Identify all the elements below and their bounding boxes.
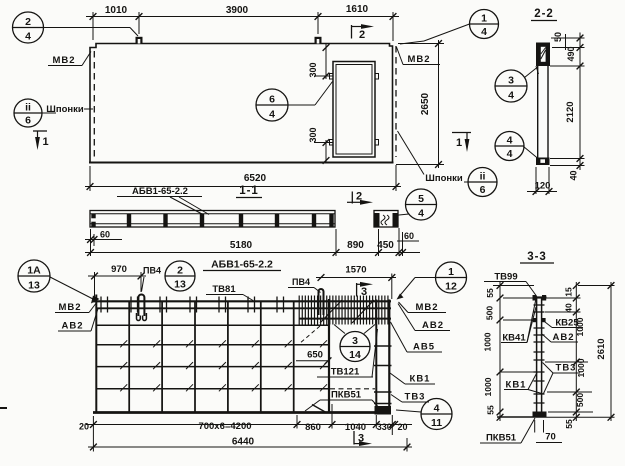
svg-text:ПВ4: ПВ4 bbox=[292, 277, 310, 287]
svg-text:1000: 1000 bbox=[483, 377, 493, 396]
svg-text:2: 2 bbox=[25, 16, 31, 28]
svg-text:1010: 1010 bbox=[105, 5, 128, 16]
svg-text:1: 1 bbox=[481, 12, 487, 24]
svg-text:АВ2: АВ2 bbox=[61, 321, 83, 332]
svg-text:60: 60 bbox=[404, 231, 414, 241]
svg-text:ТВ3: ТВ3 bbox=[556, 363, 577, 374]
svg-text:КВ1: КВ1 bbox=[506, 380, 527, 391]
svg-text:2-2: 2-2 bbox=[534, 8, 554, 20]
svg-text:55: 55 bbox=[564, 419, 574, 429]
svg-text:2610: 2610 bbox=[596, 338, 607, 359]
svg-text:3: 3 bbox=[508, 74, 514, 86]
svg-text:ii: ii bbox=[480, 170, 486, 182]
svg-text:АБВ1-65-2.2: АБВ1-65-2.2 bbox=[132, 186, 188, 197]
svg-text:4: 4 bbox=[25, 30, 31, 42]
svg-text:1А: 1А bbox=[27, 264, 41, 276]
svg-text:70: 70 bbox=[545, 432, 556, 443]
svg-text:2: 2 bbox=[359, 29, 365, 41]
svg-text:АВ2: АВ2 bbox=[422, 320, 444, 331]
svg-text:1-1: 1-1 bbox=[239, 185, 259, 197]
svg-text:3: 3 bbox=[358, 433, 364, 445]
svg-text:ПКВ51: ПКВ51 bbox=[486, 433, 517, 444]
svg-text:ТВ121: ТВ121 bbox=[331, 367, 360, 378]
svg-text:3: 3 bbox=[361, 286, 367, 298]
svg-text:АВ2: АВ2 bbox=[552, 332, 574, 343]
svg-text:1: 1 bbox=[448, 266, 454, 278]
svg-text:МВ2: МВ2 bbox=[407, 54, 430, 65]
svg-text:1: 1 bbox=[42, 136, 48, 148]
svg-text:6440: 6440 bbox=[232, 437, 255, 448]
svg-text:Шпонки: Шпонки bbox=[46, 104, 84, 115]
svg-text:КВ41: КВ41 bbox=[502, 333, 526, 344]
svg-text:6: 6 bbox=[480, 184, 486, 196]
svg-text:ТВ99: ТВ99 bbox=[494, 272, 517, 283]
svg-text:3: 3 bbox=[352, 335, 358, 347]
svg-text:4: 4 bbox=[508, 89, 514, 101]
svg-text:ii: ii bbox=[25, 101, 31, 113]
svg-text:500: 500 bbox=[575, 393, 585, 407]
svg-text:ПВ4: ПВ4 bbox=[143, 266, 161, 276]
svg-text:13: 13 bbox=[28, 279, 40, 291]
svg-text:50: 50 bbox=[553, 32, 563, 42]
svg-text:300: 300 bbox=[308, 62, 318, 77]
svg-text:1040: 1040 bbox=[345, 422, 366, 433]
svg-text:970: 970 bbox=[111, 264, 127, 275]
svg-text:3900: 3900 bbox=[226, 5, 249, 16]
svg-text:20: 20 bbox=[397, 422, 407, 432]
svg-text:5180: 5180 bbox=[230, 240, 253, 251]
svg-text:890: 890 bbox=[347, 240, 364, 251]
svg-text:4: 4 bbox=[507, 148, 513, 160]
svg-text:300: 300 bbox=[308, 127, 318, 142]
svg-text:ТВ81: ТВ81 bbox=[212, 284, 236, 295]
svg-text:6: 6 bbox=[269, 93, 275, 105]
svg-text:500: 500 bbox=[485, 306, 495, 320]
svg-text:МВ2: МВ2 bbox=[415, 302, 438, 313]
svg-text:40: 40 bbox=[564, 303, 574, 313]
svg-text:1610: 1610 bbox=[346, 4, 369, 15]
svg-text:15: 15 bbox=[564, 287, 574, 297]
svg-text:КВ1: КВ1 bbox=[410, 374, 431, 385]
svg-text:ТВ3: ТВ3 bbox=[405, 392, 426, 403]
svg-text:МВ2: МВ2 bbox=[52, 55, 75, 66]
svg-text:55: 55 bbox=[486, 405, 496, 415]
svg-text:1000: 1000 bbox=[483, 332, 493, 351]
svg-text:13: 13 bbox=[174, 278, 186, 290]
svg-text:120: 120 bbox=[535, 181, 551, 192]
svg-text:40: 40 bbox=[569, 170, 579, 180]
svg-text:1000: 1000 bbox=[576, 358, 586, 377]
svg-text:450: 450 bbox=[377, 240, 394, 251]
svg-text:12: 12 bbox=[445, 280, 457, 292]
svg-text:Шпонки: Шпонки bbox=[425, 173, 463, 184]
svg-text:6: 6 bbox=[25, 114, 31, 126]
svg-text:5: 5 bbox=[418, 193, 424, 205]
svg-text:700x6=4200: 700x6=4200 bbox=[198, 421, 251, 432]
svg-text:4: 4 bbox=[418, 207, 424, 219]
svg-text:60: 60 bbox=[100, 230, 110, 240]
svg-text:4: 4 bbox=[434, 402, 440, 414]
svg-text:11: 11 bbox=[431, 417, 442, 429]
svg-text:1: 1 bbox=[456, 137, 462, 149]
svg-text:55: 55 bbox=[485, 288, 495, 298]
svg-text:4: 4 bbox=[507, 134, 513, 146]
svg-text:КВ25: КВ25 bbox=[555, 318, 579, 329]
svg-text:20: 20 bbox=[79, 422, 89, 432]
svg-text:АВ5: АВ5 bbox=[413, 342, 435, 353]
svg-text:4: 4 bbox=[481, 26, 487, 38]
svg-text:3-3: 3-3 bbox=[527, 251, 547, 263]
svg-text:4: 4 bbox=[269, 108, 275, 120]
svg-text:ПКВ51: ПКВ51 bbox=[331, 390, 362, 401]
svg-text:650: 650 bbox=[307, 350, 323, 361]
svg-text:6520: 6520 bbox=[244, 173, 267, 184]
svg-text:1570: 1570 bbox=[345, 265, 366, 276]
svg-text:330: 330 bbox=[377, 422, 392, 432]
svg-text:860: 860 bbox=[305, 422, 321, 433]
svg-text:2: 2 bbox=[356, 191, 362, 203]
svg-text:АБВ1-65-2.2: АБВ1-65-2.2 bbox=[211, 259, 273, 271]
svg-text:490: 490 bbox=[566, 46, 576, 61]
svg-text:2120: 2120 bbox=[565, 101, 576, 122]
svg-text:МВ2: МВ2 bbox=[58, 302, 81, 313]
svg-text:14: 14 bbox=[349, 349, 361, 361]
svg-text:2: 2 bbox=[177, 264, 183, 276]
svg-text:2650: 2650 bbox=[420, 92, 431, 115]
